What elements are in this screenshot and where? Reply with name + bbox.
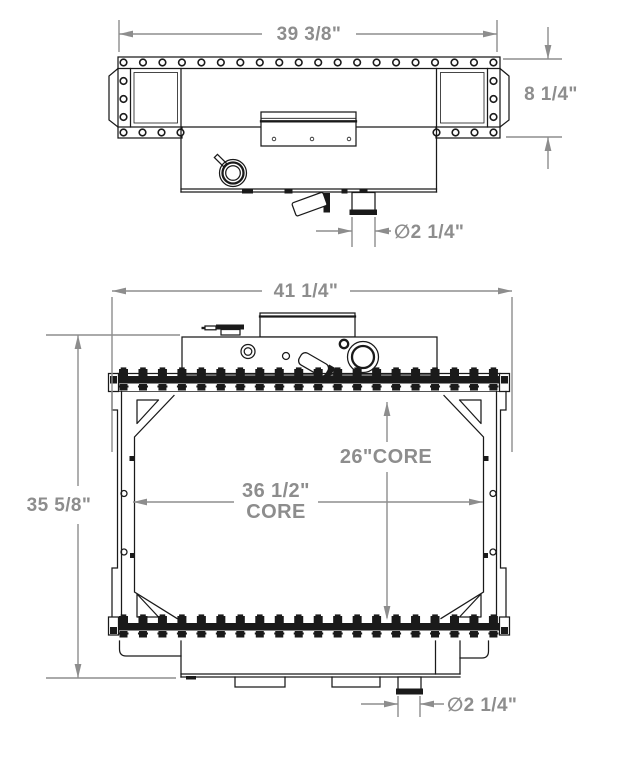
core-width-label-line2: CORE	[246, 501, 305, 523]
core-height-dimension: 26"CORE	[340, 402, 432, 620]
bolt	[391, 631, 401, 638]
bolt	[488, 631, 498, 638]
bolt	[372, 384, 382, 391]
bolt	[120, 78, 127, 85]
right-frame-plate	[441, 396, 489, 619]
bolt	[490, 129, 497, 136]
bolt	[275, 614, 284, 623]
bolt	[235, 631, 245, 638]
bolt	[333, 614, 342, 623]
bolt	[197, 614, 206, 623]
right-side-channel	[490, 392, 506, 618]
bolt	[274, 631, 284, 638]
bolt	[196, 631, 206, 638]
front-bottom-flange	[109, 614, 510, 637]
bolt	[196, 384, 206, 391]
top-mounting-plate	[261, 112, 356, 146]
bolt	[235, 384, 245, 391]
core-width-dimension: 36 1/2" CORE	[133, 480, 483, 523]
bolt	[469, 631, 479, 638]
bolt	[451, 59, 458, 66]
bolt	[490, 114, 497, 121]
left-flange-bolt-holes	[120, 78, 127, 121]
bolt	[120, 59, 127, 66]
bottom-flange-bolt-nuts	[119, 631, 499, 638]
bolt	[490, 78, 497, 85]
bolt	[469, 367, 478, 376]
bolt	[352, 384, 362, 391]
bolt	[430, 384, 440, 391]
bottom-bracket-right	[332, 677, 380, 687]
top-view-width-label: 39 3/8"	[277, 24, 342, 45]
bolt	[411, 631, 421, 638]
bolt	[294, 614, 303, 623]
bolt	[236, 614, 245, 623]
bolt	[276, 59, 283, 66]
bolt	[412, 59, 419, 66]
bolt	[313, 384, 323, 391]
bolt	[274, 384, 284, 391]
bolt	[352, 631, 362, 638]
bolt	[392, 614, 401, 623]
bolt	[177, 631, 187, 638]
front-view-outlet-dimension: ∅2 1/4"	[361, 695, 517, 717]
bottom-bracket-left	[235, 677, 285, 687]
bolt	[469, 614, 478, 623]
bolt	[157, 631, 167, 638]
bolt	[120, 129, 127, 136]
bolt	[449, 384, 459, 391]
top-view: 39 3/8" 8 1/4" ∅2 1/4"	[109, 20, 578, 247]
bolt	[237, 59, 244, 66]
front-view-outlet-label: ∅2 1/4"	[447, 695, 517, 716]
bolt	[159, 59, 166, 66]
bolt	[218, 59, 225, 66]
top-view-outlet-dimension: ∅2 1/4"	[316, 217, 464, 247]
bolt	[119, 384, 129, 391]
bottom-right-flange-bolt-holes	[433, 129, 497, 136]
filler-cap	[202, 325, 245, 336]
bottom-tank	[120, 641, 489, 695]
bolt	[391, 384, 401, 391]
bolt	[138, 614, 147, 623]
bolt	[430, 631, 440, 638]
top-view-outlet-pipe	[350, 193, 378, 216]
bolt	[411, 614, 420, 623]
top-view-depth-dimension: 8 1/4"	[503, 27, 578, 169]
bolt	[119, 367, 128, 376]
bolt	[452, 129, 459, 136]
bolt	[393, 59, 400, 66]
bolt	[140, 59, 147, 66]
top-flange-bolt-holes	[120, 59, 497, 66]
bolt	[119, 631, 129, 638]
bolt	[119, 614, 128, 623]
bolt	[490, 59, 497, 66]
bolt	[216, 631, 226, 638]
bolt	[255, 614, 264, 623]
bolt	[256, 59, 263, 66]
bolt	[255, 631, 265, 638]
bolt	[138, 367, 147, 376]
bolt	[432, 59, 439, 66]
right-flange-bolt-holes	[490, 78, 497, 121]
bolt	[488, 384, 498, 391]
bolt	[157, 384, 167, 391]
left-side-channel	[112, 392, 127, 618]
bolt	[471, 59, 478, 66]
bolt	[354, 59, 361, 66]
bolt	[295, 59, 302, 66]
front-view-width-label: 41 1/4"	[274, 281, 339, 302]
top-view-width-dimension: 39 3/8"	[119, 20, 497, 52]
front-view-height-label: 35 5/8"	[27, 495, 92, 516]
radiator-drawing-canvas: 39 3/8" 8 1/4" ∅2 1/4"	[0, 0, 618, 764]
bottom-left-flange-bolt-holes	[120, 129, 184, 136]
top-view-left-bracket	[109, 69, 118, 128]
core-width-label-line1: 36 1/2"	[242, 480, 310, 502]
bolt	[469, 384, 479, 391]
bolt	[158, 614, 167, 623]
top-view-outlet-label: ∅2 1/4"	[394, 222, 464, 243]
front-view-outlet-pipe	[396, 677, 423, 695]
front-view: 41 1/4" 35 5/8" 26"CORE 36 1/2" CORE	[27, 281, 518, 717]
drain-plug	[186, 676, 196, 680]
bolt	[294, 631, 304, 638]
bolt	[177, 384, 187, 391]
top-view-right-bracket	[500, 69, 509, 128]
bolt	[333, 631, 343, 638]
top-riser	[260, 313, 355, 337]
bolt	[216, 614, 225, 623]
bolt	[373, 59, 380, 66]
bolt	[450, 367, 459, 376]
bolt	[138, 384, 148, 391]
left-top-gusset-cutout	[137, 400, 159, 424]
bolt	[431, 614, 440, 623]
elbow-outlet-pipe	[292, 192, 330, 216]
bolt	[294, 384, 304, 391]
bolt	[411, 384, 421, 391]
bolt	[449, 631, 459, 638]
bolt	[216, 384, 226, 391]
left-frame-plate	[130, 396, 178, 619]
bolt	[333, 384, 343, 391]
bolt	[450, 614, 459, 623]
bolt	[334, 59, 341, 66]
bolt	[198, 59, 205, 66]
technical-drawing-page: 39 3/8" 8 1/4" ∅2 1/4"	[0, 0, 618, 764]
bolt	[490, 96, 497, 103]
bolt	[120, 96, 127, 103]
core-height-label: 26"CORE	[340, 446, 432, 468]
bolt	[120, 114, 127, 121]
bolt	[158, 129, 165, 136]
bolt	[372, 614, 381, 623]
left-channel-opening	[134, 73, 178, 124]
bolt	[313, 631, 323, 638]
bolt	[158, 367, 167, 376]
bolt	[315, 59, 322, 66]
bolt	[177, 614, 186, 623]
bolt	[138, 631, 148, 638]
right-top-gusset-cutout	[460, 400, 482, 424]
bolt	[353, 614, 362, 623]
bolt	[255, 384, 265, 391]
top-flange-bolt-nuts	[119, 384, 499, 391]
bolt	[139, 129, 146, 136]
top-view-depth-label: 8 1/4"	[524, 84, 578, 105]
bolt	[372, 631, 382, 638]
right-channel-opening	[441, 73, 485, 124]
bolt	[179, 59, 186, 66]
filler-neck	[214, 154, 246, 186]
bolt	[489, 367, 498, 376]
bolt	[471, 129, 478, 136]
bolt	[314, 614, 323, 623]
